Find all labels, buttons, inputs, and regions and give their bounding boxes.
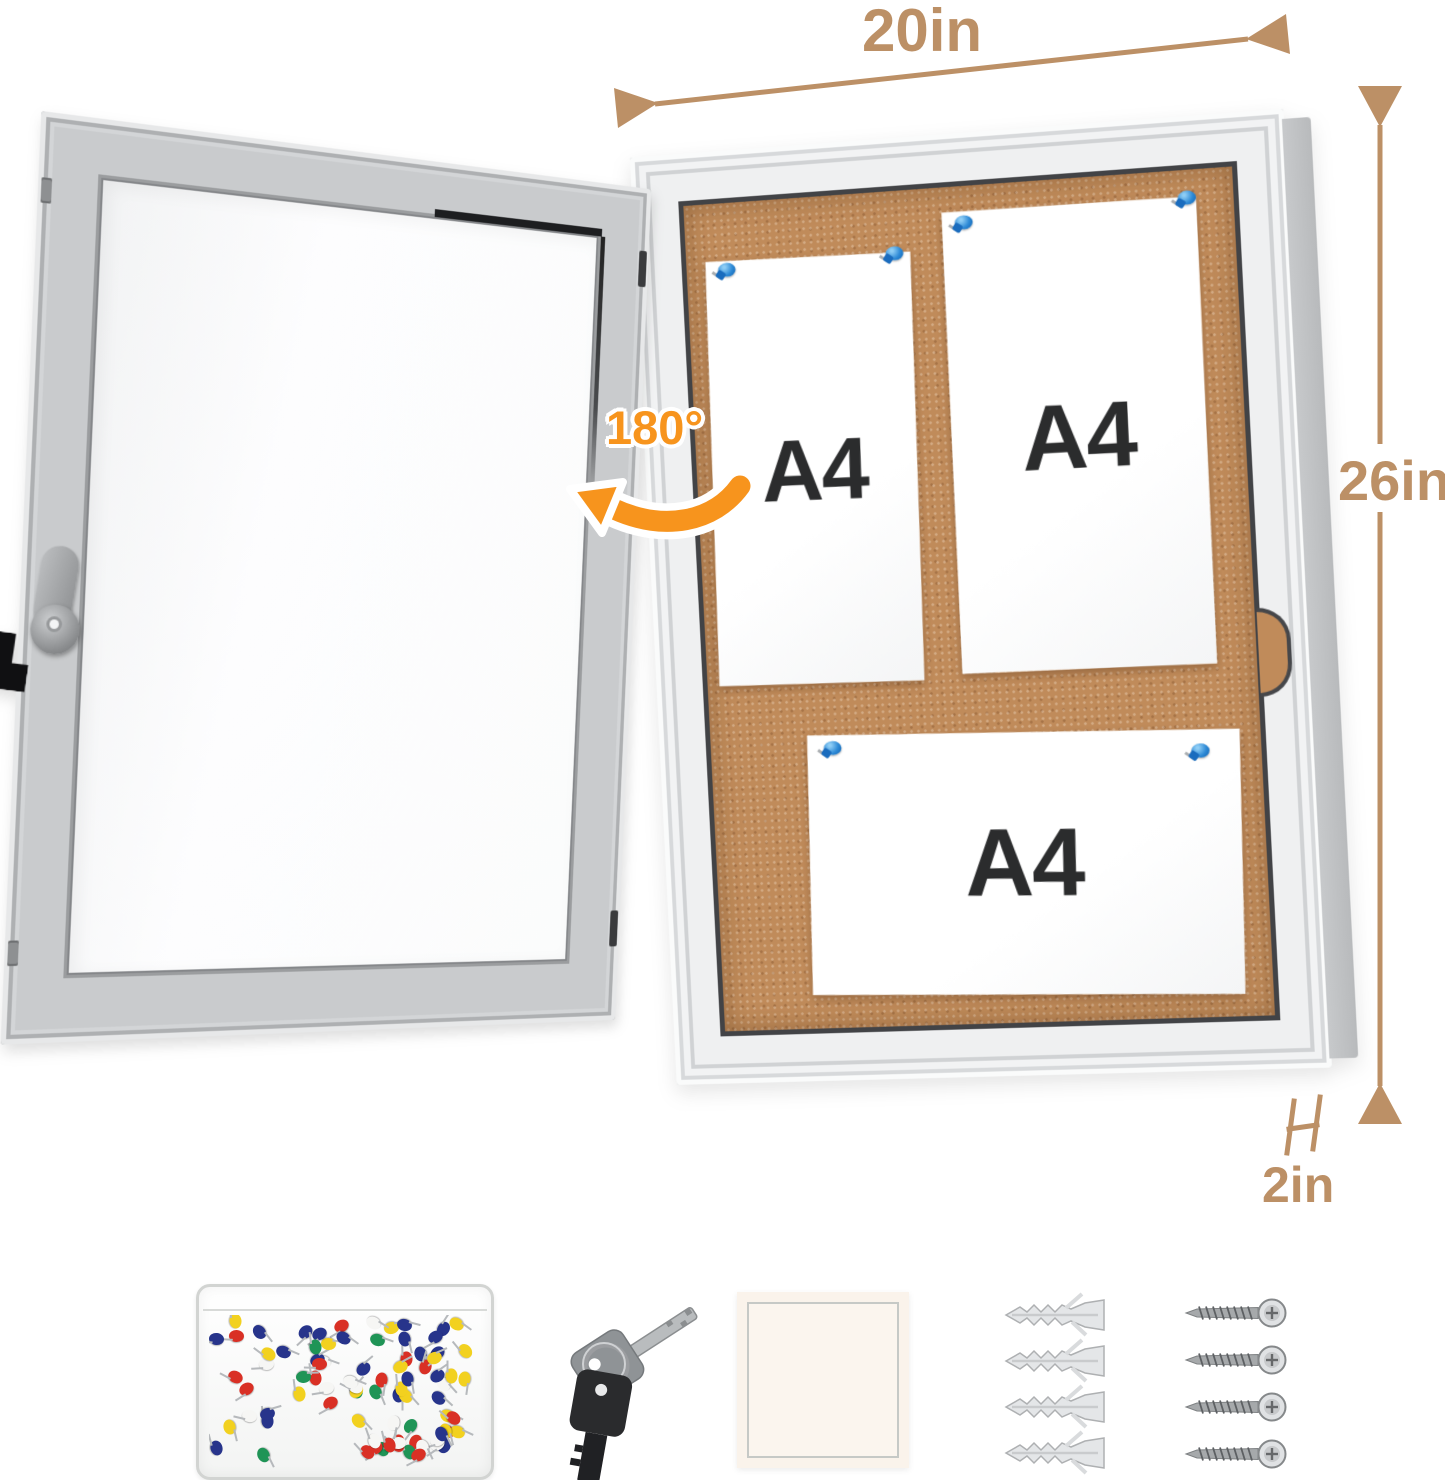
pushpin-icon [369,1331,387,1347]
hinge-plate [40,177,52,204]
pushpin-icon [209,1439,224,1457]
a4-paper: A4 [807,729,1246,995]
adhesive-pad [737,1292,909,1468]
pushpin-icon [397,1330,412,1347]
pushpin-icon [386,1414,401,1431]
product-image: A4 A4 A4 [0,0,1445,1480]
cabinet-depth-side [1282,117,1358,1059]
pushpin-icon [296,1371,311,1384]
pushpin-icon [274,1343,292,1360]
pushpin-icon [321,1394,340,1412]
pushpin-assortment [209,1315,485,1471]
door-swing-label: 180° [606,400,703,455]
paper-size-label: A4 [760,417,869,522]
pushpin-icon [458,1371,472,1388]
pushpin-icon [824,741,842,755]
pushpin-icon [885,246,903,261]
pushpin-icon [429,1389,448,1408]
cork-board: A4 A4 A4 [678,161,1280,1036]
door-glass-panel [67,178,599,975]
pushpin-icon [241,1408,258,1423]
height-dimension-label: 26in [1338,448,1445,513]
pushpin-icon [1178,190,1197,205]
pushpin-icon [255,1445,272,1464]
depth-dimension-label: 2in [1262,1156,1334,1214]
latch-hook [0,630,33,692]
pushpin-box [196,1284,494,1480]
hinge-plate [7,940,19,966]
pushpin-icon [447,1315,466,1334]
paper-size-label: A4 [964,808,1085,919]
pushpin-icon [250,1322,269,1341]
pushpin-icon [229,1330,245,1343]
depth-dimension-bracket [1287,1097,1320,1153]
pushpin-icon [312,1358,327,1371]
pushpin-icon [402,1417,421,1436]
finger-notch [1256,606,1293,697]
keys-icon [557,1287,708,1480]
bulletin-board-cabinet: A4 A4 A4 [630,109,1332,1085]
a4-paper: A4 [941,196,1217,674]
pushpin-icon [456,1342,475,1361]
a4-paper: A4 [705,252,924,687]
screws-icon [1186,1300,1286,1468]
width-dimension-label: 20in [862,0,982,65]
wall-anchors-icon [1006,1294,1104,1473]
pushpin-icon [229,1315,243,1329]
paper-size-label: A4 [1019,381,1138,493]
pushpin-icon [293,1386,307,1402]
pushpin-icon [222,1419,237,1436]
pushpin-icon [364,1315,383,1332]
pushpin-icon [209,1332,225,1346]
hinge [638,251,647,288]
pushpin-icon [1191,743,1210,757]
pushpin-icon [374,1372,388,1389]
glass-door [1,111,652,1045]
pushpin-icon [318,1381,335,1395]
hinge [609,910,618,946]
pushpin-icon [718,263,736,278]
height-dimension-line [1358,86,1402,1124]
pushpin-icon [954,215,972,230]
pushpin-icon [445,1368,457,1383]
lock-cylinder [29,604,80,655]
